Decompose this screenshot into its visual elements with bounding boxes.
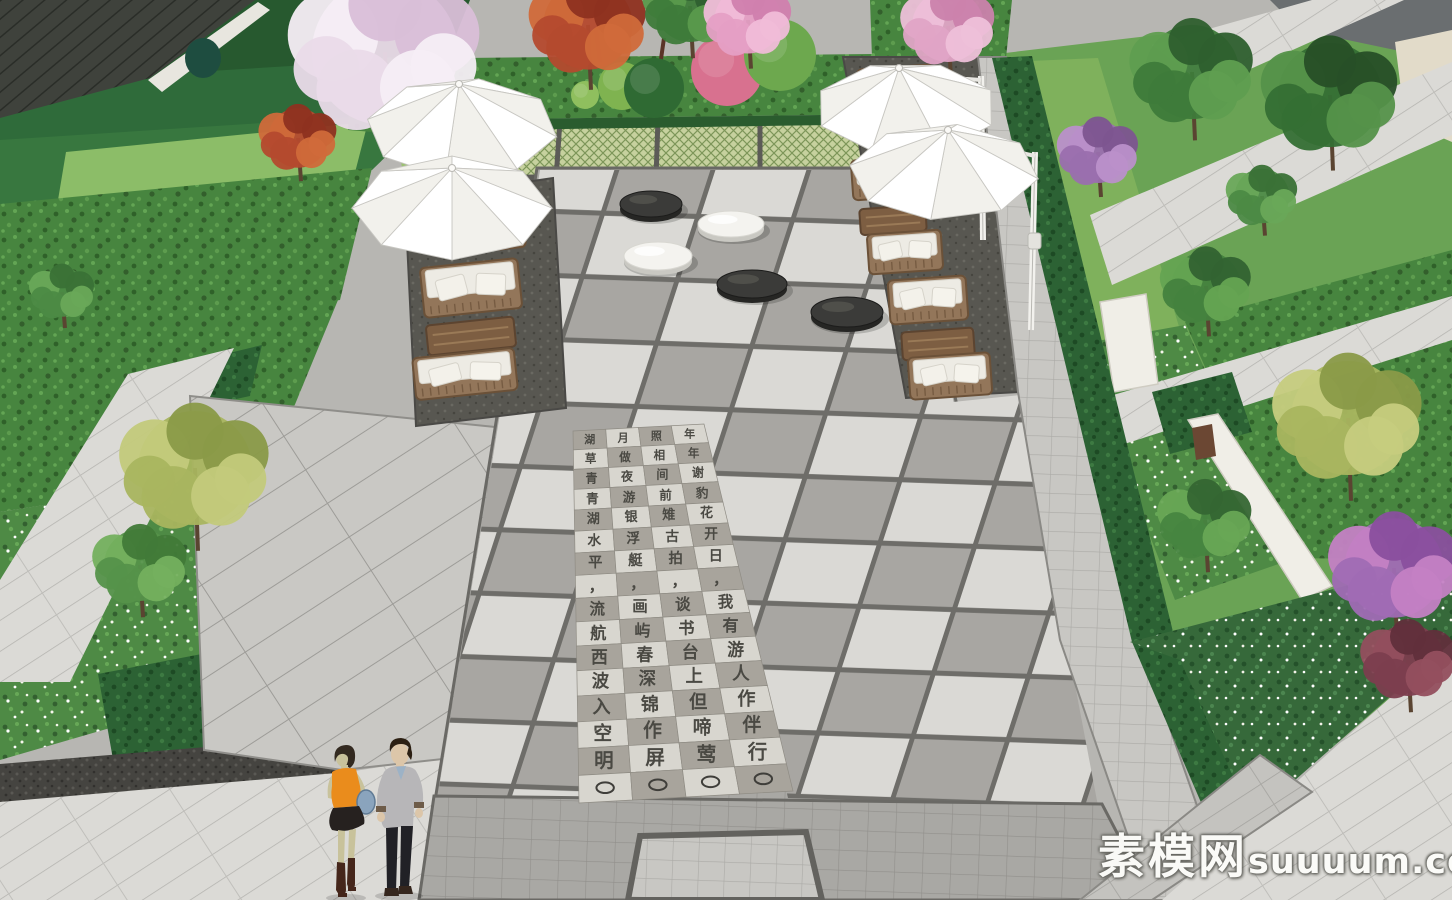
poem-character: 游	[727, 640, 744, 660]
poem-character: 古	[665, 528, 679, 545]
poem-character: 豹	[695, 485, 709, 500]
poem-character: 年	[684, 427, 695, 441]
poem-character: 间	[656, 467, 668, 482]
poem-character: 人	[732, 663, 750, 684]
poem-character: 春	[636, 645, 653, 665]
poem-character: 开	[704, 527, 718, 543]
poem-character: 行	[747, 740, 768, 763]
poem-character: 夜	[620, 469, 634, 484]
poem-character: 我	[718, 592, 734, 611]
poem-tile	[579, 772, 633, 803]
poem-character: 入	[593, 697, 611, 718]
poem-character: 前	[659, 487, 672, 502]
poem-character: 流	[590, 599, 606, 618]
poem-character: 花	[700, 504, 713, 521]
poem-character: 屿	[634, 621, 650, 640]
watermark-domain: suuuum.com	[1248, 842, 1452, 882]
poem-character: 上	[685, 667, 702, 687]
poem-character: 游	[623, 489, 636, 504]
poem-character: 伴	[742, 713, 762, 736]
poem-character: ，	[630, 575, 645, 593]
poem-character: 湖	[587, 511, 600, 527]
rattan-sofa	[420, 258, 523, 318]
poem-character: 作	[643, 718, 662, 741]
poem-character: 西	[591, 647, 608, 667]
rattan-sofa	[908, 352, 993, 400]
poem-character: 照	[651, 429, 662, 442]
watermark-site-name: 素模网	[1098, 818, 1248, 887]
poem-character: 书	[678, 618, 694, 637]
poem-character: 有	[722, 616, 738, 635]
poem-character: 台	[682, 642, 699, 662]
poem-character: 拍	[668, 549, 682, 567]
poem-character: 啼	[693, 716, 712, 739]
poem-character: 艇	[627, 551, 643, 569]
poem-character: 锦	[641, 693, 659, 715]
shrub-small	[571, 81, 599, 109]
courtyard-render: 湖月照年草做相年青夜间谢青游前豹湖银雉花水浮古开平艇拍日，，，，流画谈我航屿书有…	[0, 0, 1452, 900]
poem-character: 空	[593, 721, 612, 744]
poem-character: 水	[587, 532, 601, 549]
poem-character: 做	[618, 450, 631, 464]
poem-tile	[734, 764, 793, 794]
plaza-inset-square	[628, 832, 822, 900]
poem-character: ，	[589, 577, 604, 595]
poem-character: 屏	[645, 746, 665, 769]
poem-character: 谢	[692, 465, 704, 480]
poem-character: 雉	[662, 506, 675, 523]
shrub-mound-dark	[624, 58, 684, 118]
poem-character: 青	[585, 470, 597, 485]
poem-character: 航	[590, 623, 606, 642]
poem-character: 草	[585, 452, 597, 466]
dark-dome-shrub	[185, 38, 221, 78]
poem-character: 波	[592, 671, 610, 692]
wall-plaque	[1192, 424, 1216, 460]
rattan-sofa	[888, 275, 969, 324]
poem-character: 相	[654, 448, 666, 462]
poem-character: 深	[639, 669, 657, 690]
parasol-left-lower	[352, 156, 552, 260]
poem-tile	[682, 767, 739, 797]
poem-character: ，	[713, 570, 728, 588]
poem-character: 但	[689, 691, 707, 713]
scene-canvas: 湖月照年草做相年青夜间谢青游前豹湖银雉花水浮古开平艇拍日，，，，流画谈我航屿书有…	[0, 0, 1452, 900]
poem-character: 湖	[584, 432, 595, 446]
poem-character: 作	[737, 688, 755, 710]
watermark: 素模网suuuum.com	[1098, 818, 1452, 887]
poem-character: 明	[594, 749, 614, 772]
poem-character: 银	[625, 508, 639, 525]
poem-character: 画	[632, 598, 648, 616]
poem-character: ，	[672, 572, 687, 590]
poem-character: 谈	[675, 594, 691, 613]
poem-character: 浮	[626, 530, 640, 547]
poem-character: 莺	[697, 743, 717, 766]
poem-character: 日	[709, 548, 723, 565]
poem-tile	[631, 770, 686, 800]
rattan-sofa	[867, 229, 944, 274]
poem-character: 平	[588, 554, 602, 571]
poem-character: 年	[688, 446, 700, 460]
poem-character: 月	[617, 431, 629, 444]
poem-character: 青	[586, 491, 599, 506]
